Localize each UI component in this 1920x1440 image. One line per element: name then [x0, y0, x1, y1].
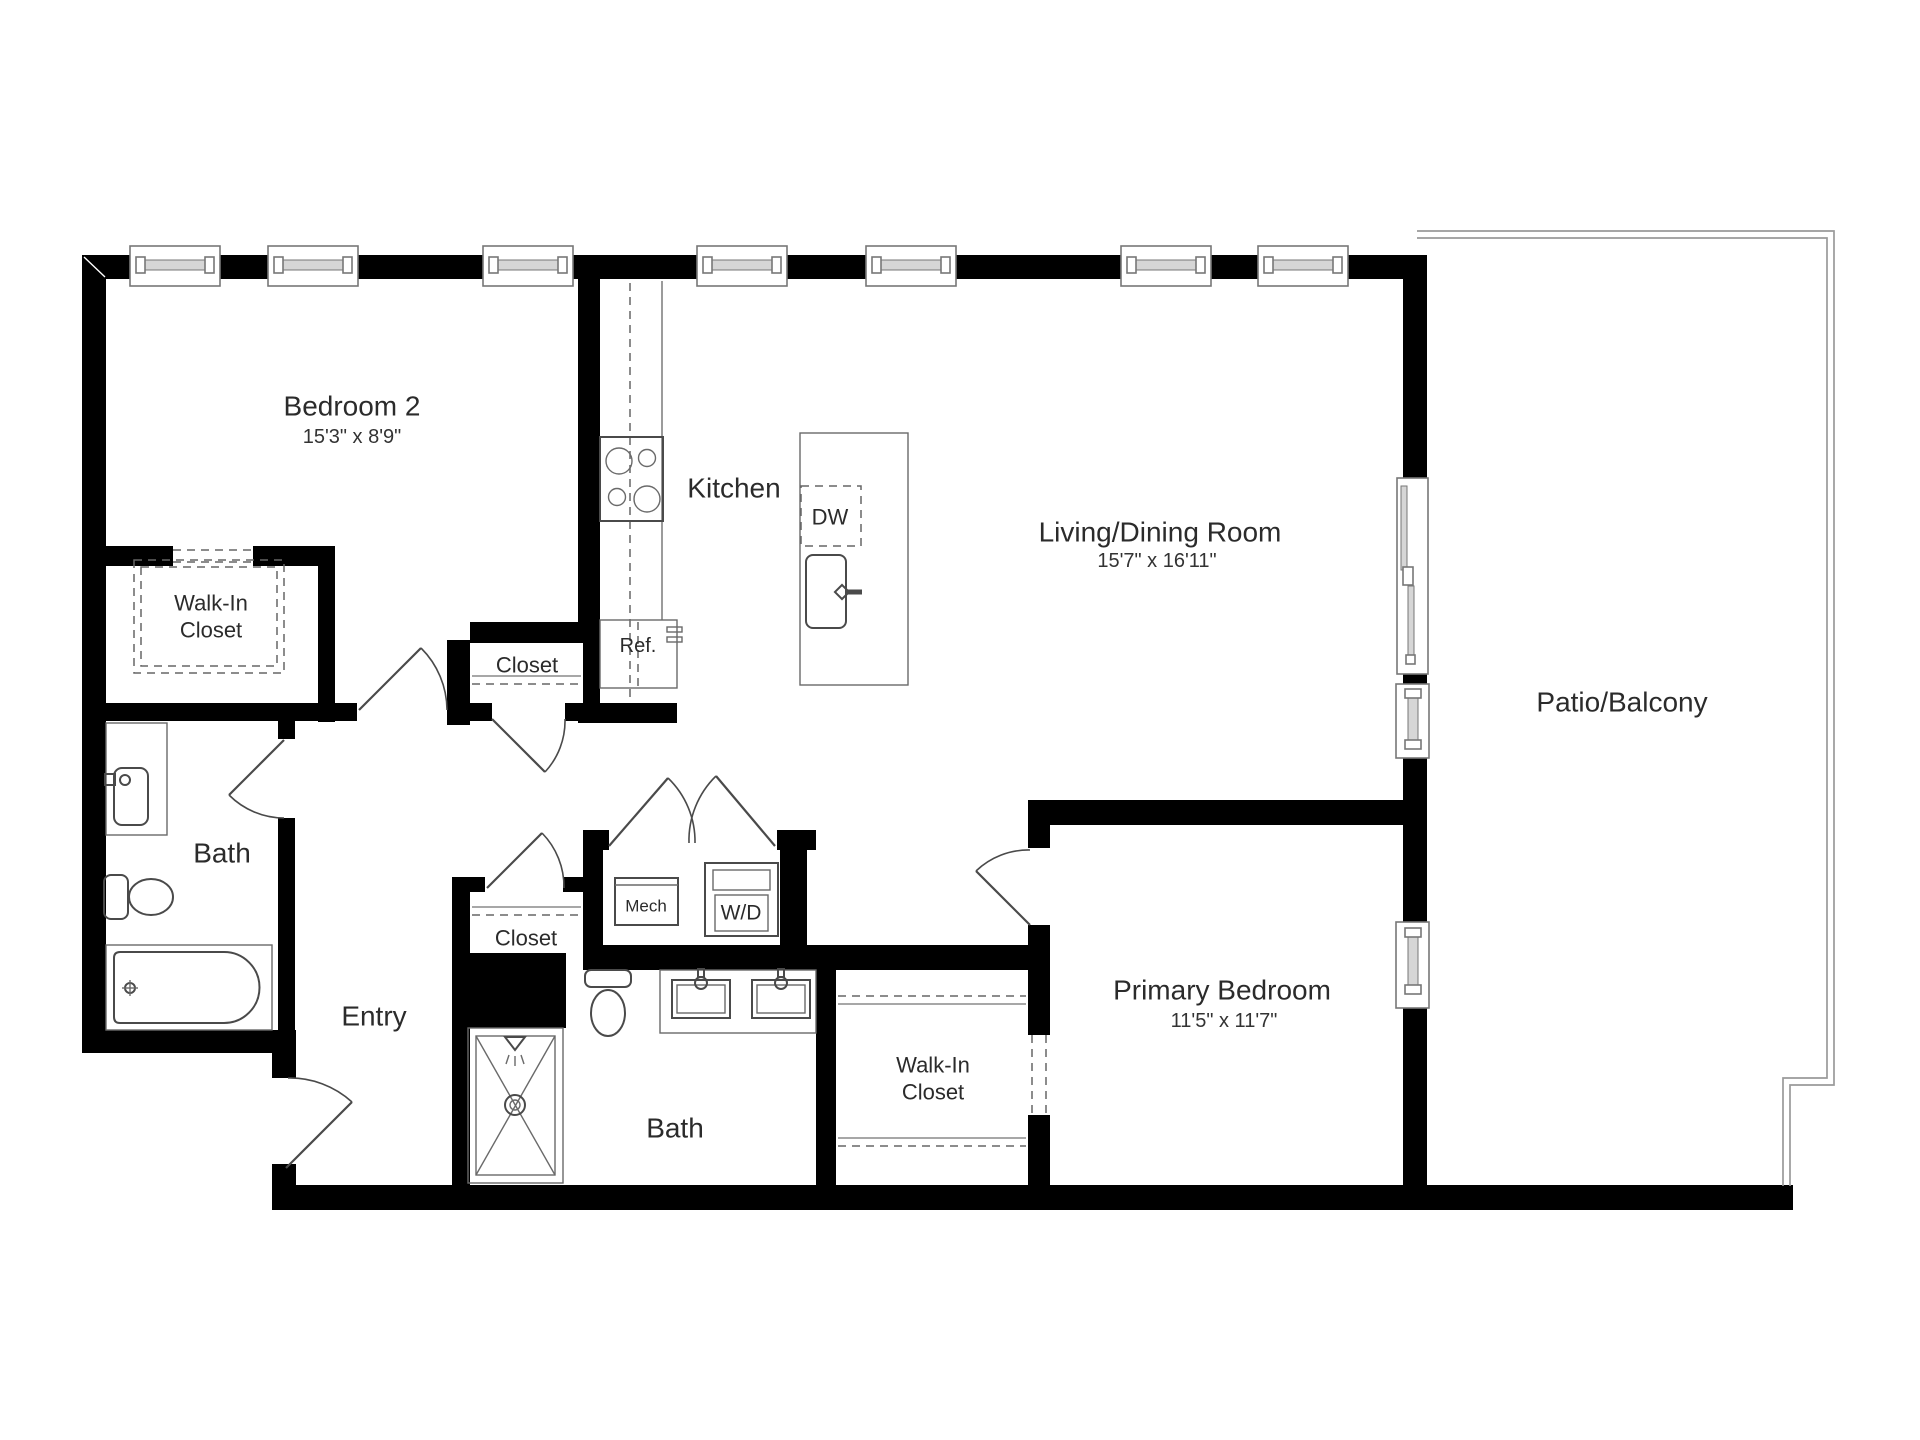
- labels: Bedroom 2 15'3" x 8'9" Kitchen DW Living…: [174, 391, 1707, 1144]
- room-label-entry: Entry: [341, 1001, 406, 1032]
- washer-dryer-icon: [705, 863, 778, 936]
- bath1-tub-icon: [106, 945, 272, 1030]
- label-bedroom2-wic-line1: Walk-In: [174, 591, 248, 616]
- window-icon: [130, 246, 220, 286]
- label-closet-lower: Closet: [495, 926, 557, 951]
- bedroom2-door: [359, 648, 447, 710]
- room-label-patio: Patio/Balcony: [1536, 687, 1707, 718]
- entry-front-door: [286, 1078, 352, 1168]
- label-bedroom2-wic-line2: Closet: [180, 618, 242, 643]
- stove-icon: [600, 437, 663, 521]
- window-icon: [697, 246, 787, 286]
- bath1-door: [229, 740, 284, 818]
- right-wall-window-lower: [1396, 922, 1429, 1008]
- room-label-primary-bedroom: Primary Bedroom: [1113, 975, 1331, 1006]
- room-label-living-dining: Living/Dining Room: [1039, 517, 1282, 548]
- floor-plan-drawing: Bedroom 2 15'3" x 8'9" Kitchen DW Living…: [0, 0, 1920, 1440]
- shower-icon: [468, 1028, 563, 1183]
- refrigerator-label: Ref.: [620, 635, 657, 657]
- room-dims-living-dining: 15'7" x 16'11": [1097, 550, 1216, 572]
- mech-label: Mech: [625, 897, 667, 916]
- bath2-toilet-icon: [585, 970, 631, 1036]
- kitchen-island: [800, 433, 908, 685]
- closet-upper-door: [492, 719, 565, 772]
- room-label-kitchen: Kitchen: [687, 473, 780, 504]
- patio-sliding-door: [1397, 478, 1428, 674]
- label-primary-wic-line2: Closet: [902, 1080, 964, 1105]
- room-dims-primary-bedroom: 11'5" x 11'7": [1171, 1010, 1278, 1032]
- bath2-double-door: [609, 776, 775, 846]
- window-icon: [1121, 246, 1211, 286]
- closet-lower-door: [487, 833, 564, 888]
- label-primary-wic-line1: Walk-In: [896, 1053, 970, 1078]
- washer-dryer-label: W/D: [721, 902, 762, 925]
- room-label-bath1: Bath: [193, 838, 251, 869]
- label-closet-upper: Closet: [496, 653, 558, 678]
- floor-plan-canvas: Bedroom 2 15'3" x 8'9" Kitchen DW Living…: [0, 0, 1920, 1440]
- room-dims-bedroom2: 15'3" x 8'9": [303, 426, 402, 448]
- room-label-bath2: Bath: [646, 1113, 704, 1144]
- window-icon: [866, 246, 956, 286]
- closet-lower-rod: [472, 907, 581, 915]
- window-icon: [1258, 246, 1348, 286]
- bath2-double-vanity-icon: [660, 969, 816, 1033]
- window-icon: [483, 246, 573, 286]
- primary-bedroom-door: [976, 850, 1030, 925]
- bath1-toilet-icon: [104, 875, 173, 919]
- window-icon: [268, 246, 358, 286]
- top-wall-windows: [130, 246, 1348, 286]
- right-wall-window-upper: [1396, 684, 1429, 758]
- bath1-vanity-icon: [105, 723, 167, 835]
- room-label-bedroom2: Bedroom 2: [284, 391, 421, 422]
- dishwasher-label: DW: [812, 505, 849, 530]
- island-sink-icon: [806, 555, 862, 628]
